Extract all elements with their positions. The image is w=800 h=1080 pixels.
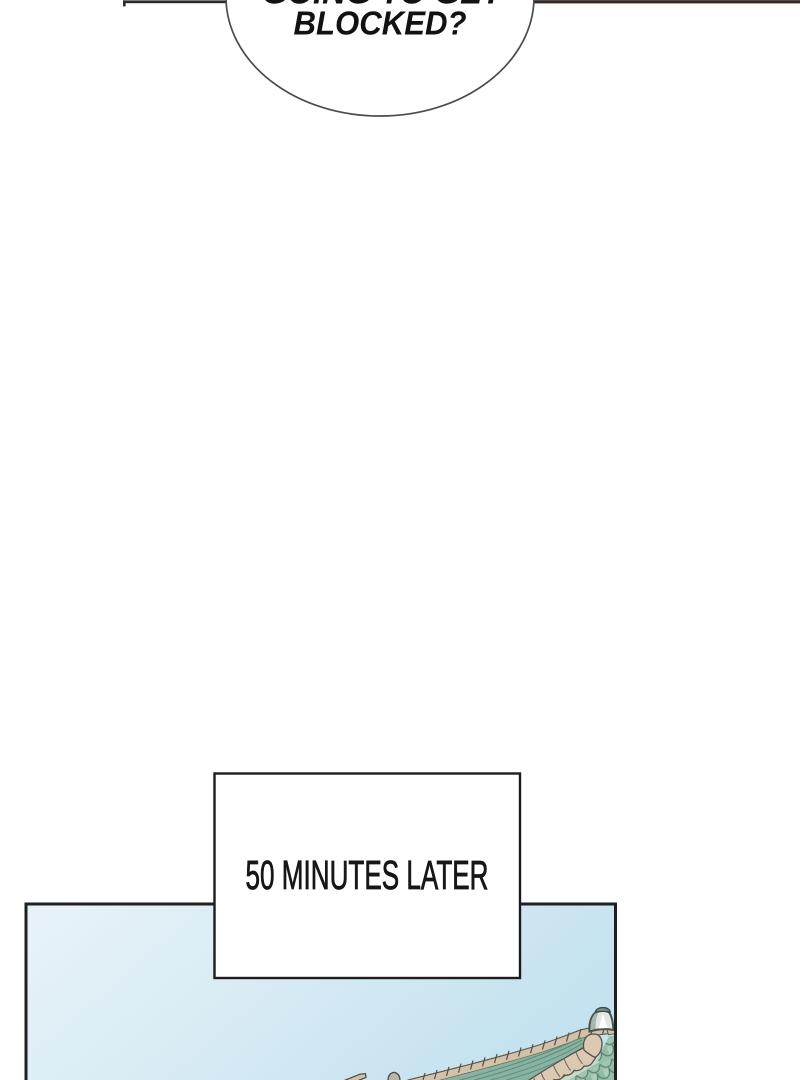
svg-text:50 MINUTES LATER: 50 MINUTES LATER bbox=[246, 852, 489, 898]
svg-text:BLOCKED?: BLOCKED? bbox=[294, 5, 467, 42]
